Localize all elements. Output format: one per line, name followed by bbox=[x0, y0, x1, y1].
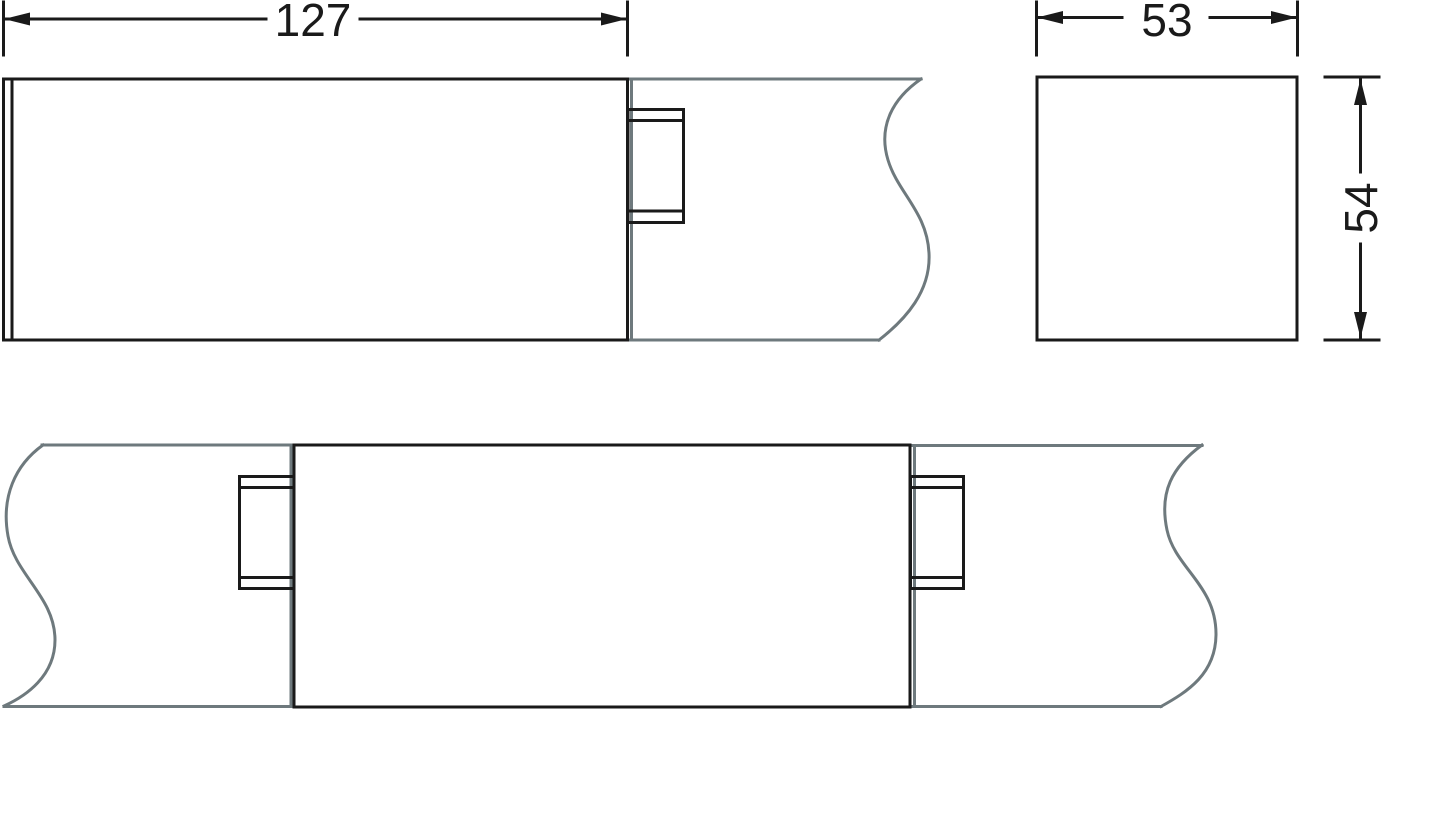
drawing-canvas: 127 53 54 bbox=[0, 0, 1440, 825]
width-dimension-label: 53 bbox=[1141, 0, 1192, 46]
arrowhead-left bbox=[4, 13, 30, 26]
dimension-labels: 127 53 54 bbox=[275, 0, 1387, 234]
right-clip bbox=[911, 477, 964, 589]
part-body bbox=[294, 445, 910, 707]
channel-break-line bbox=[879, 79, 929, 340]
technical-drawing: 127 53 54 bbox=[0, 0, 1440, 825]
clip bbox=[628, 110, 684, 223]
part-cross-section bbox=[1037, 77, 1297, 340]
arrowhead-right bbox=[601, 13, 627, 26]
side-view-part bbox=[4, 79, 684, 340]
dimension-layer bbox=[4, 2, 1380, 340]
arrowhead-down bbox=[1354, 312, 1367, 338]
end-view-part bbox=[1037, 77, 1297, 340]
part-body bbox=[4, 79, 628, 340]
arrowhead-left bbox=[1037, 11, 1063, 24]
joint-view-left-channel bbox=[4, 445, 292, 707]
channel-break-line bbox=[1161, 445, 1216, 707]
joint-view-part bbox=[240, 445, 964, 707]
left-clip bbox=[240, 477, 295, 589]
length-dimension-label: 127 bbox=[275, 0, 352, 46]
part-layer bbox=[4, 77, 1298, 707]
height-dimension-label: 54 bbox=[1335, 182, 1387, 233]
channel-break-line bbox=[4, 445, 55, 706]
arrowhead-up bbox=[1354, 79, 1367, 105]
channel-layer bbox=[4, 79, 1216, 707]
joint-view-right-channel bbox=[912, 445, 1216, 707]
arrowhead-right bbox=[1271, 11, 1297, 24]
